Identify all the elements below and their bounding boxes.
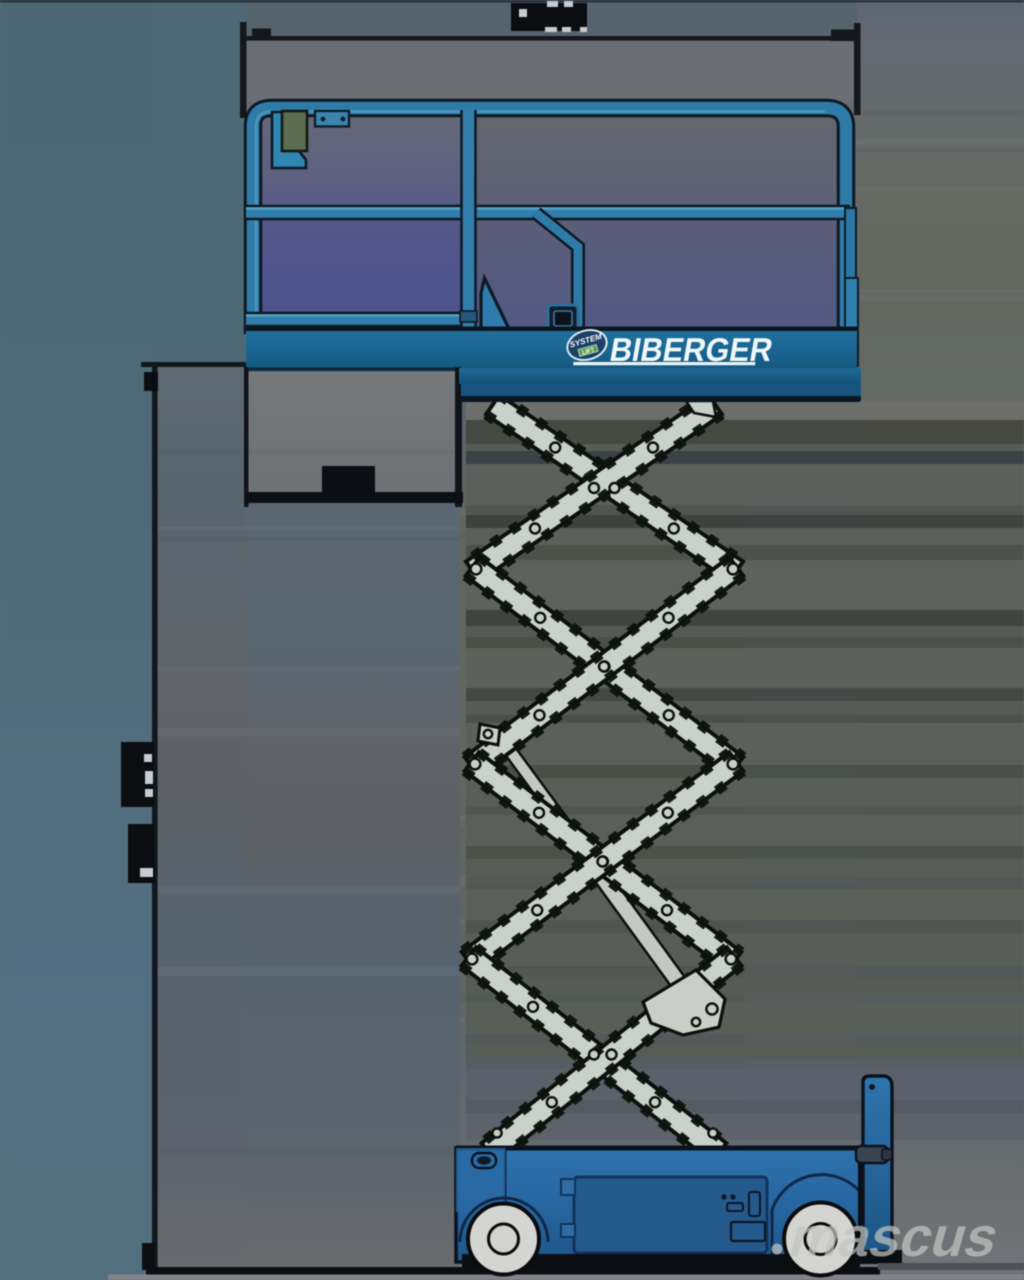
svg-text:mascus: mascus [782,1206,1006,1269]
